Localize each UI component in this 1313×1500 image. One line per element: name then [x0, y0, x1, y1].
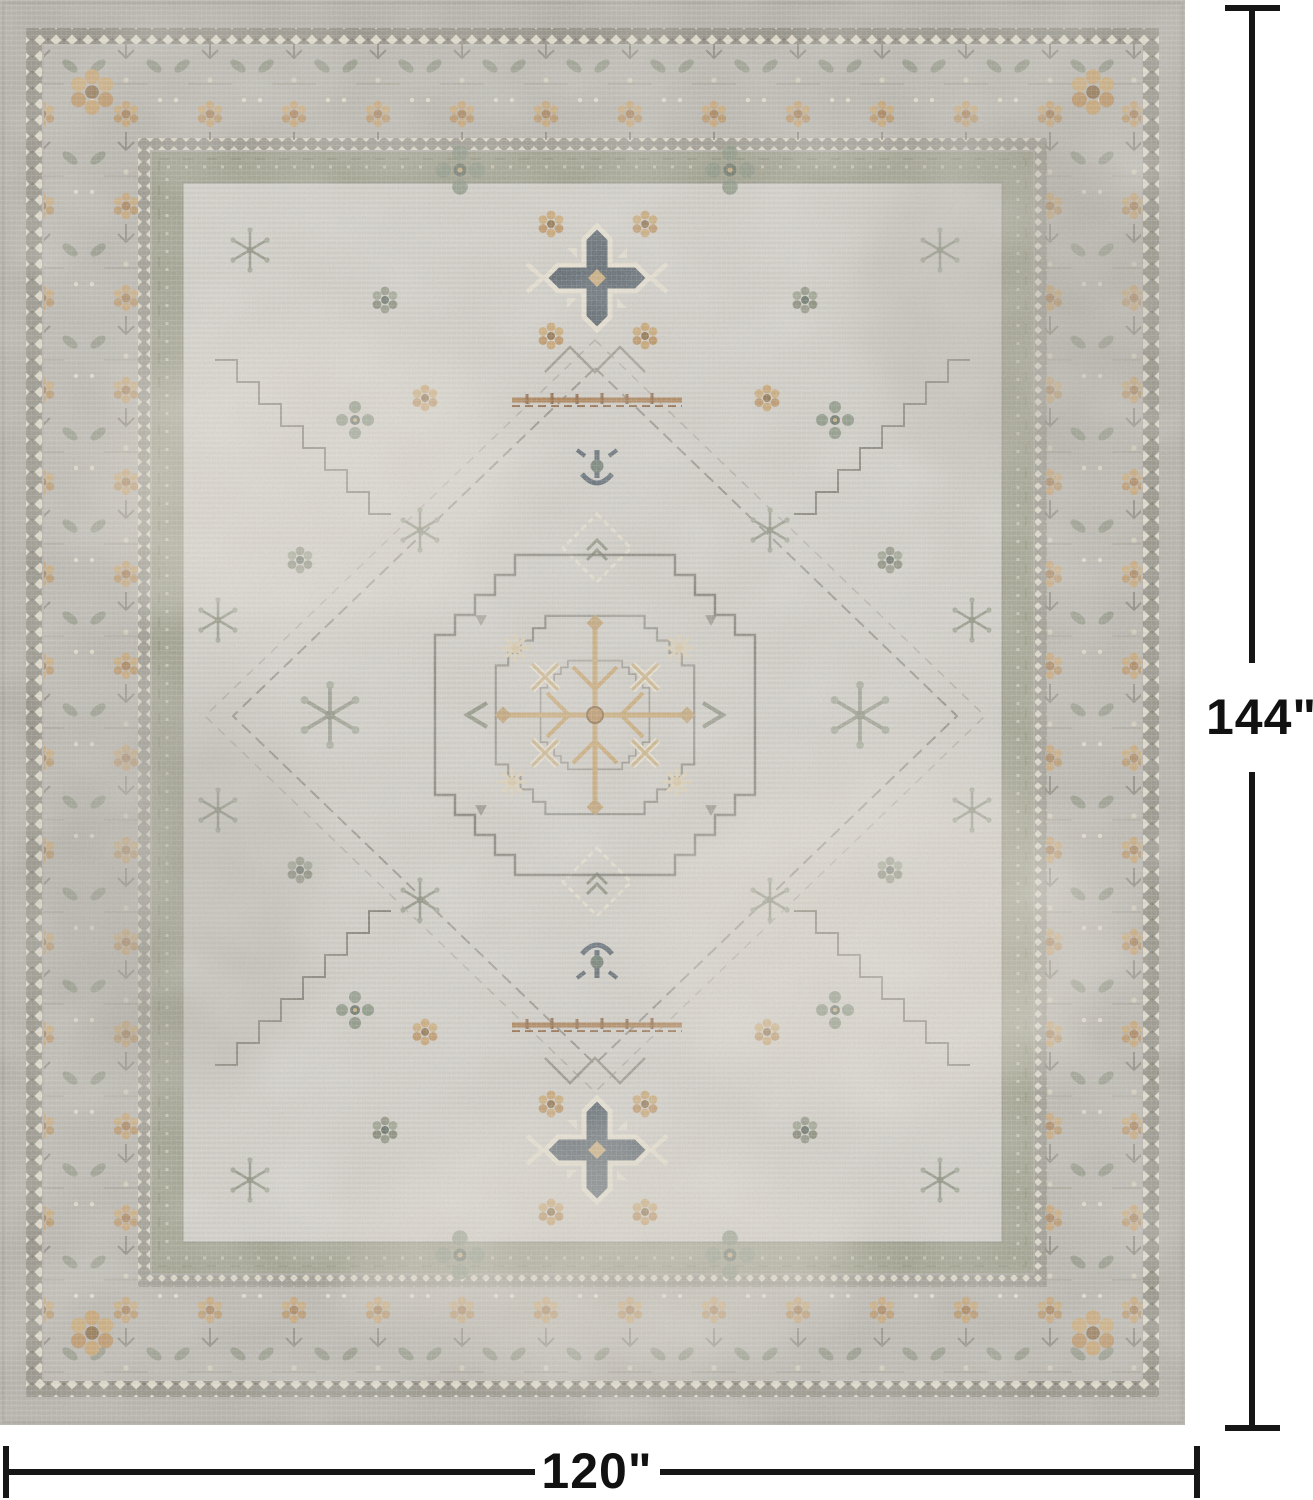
width-dimension-line-right	[660, 1469, 1200, 1475]
rug-image	[0, 0, 1185, 1425]
height-dimension-label: 144"	[1206, 688, 1313, 746]
product-canvas: 144" 120"	[0, 0, 1313, 1500]
rug-texture	[0, 0, 1185, 1425]
width-dimension-label: 120"	[531, 1442, 663, 1500]
width-dimension-right-tick	[1194, 1446, 1200, 1498]
height-dimension-line-lower	[1249, 772, 1255, 1428]
width-dimension-line-left	[3, 1469, 535, 1475]
height-dimension-line-upper	[1249, 8, 1255, 663]
height-dimension-bottom-tick	[1225, 1425, 1280, 1431]
